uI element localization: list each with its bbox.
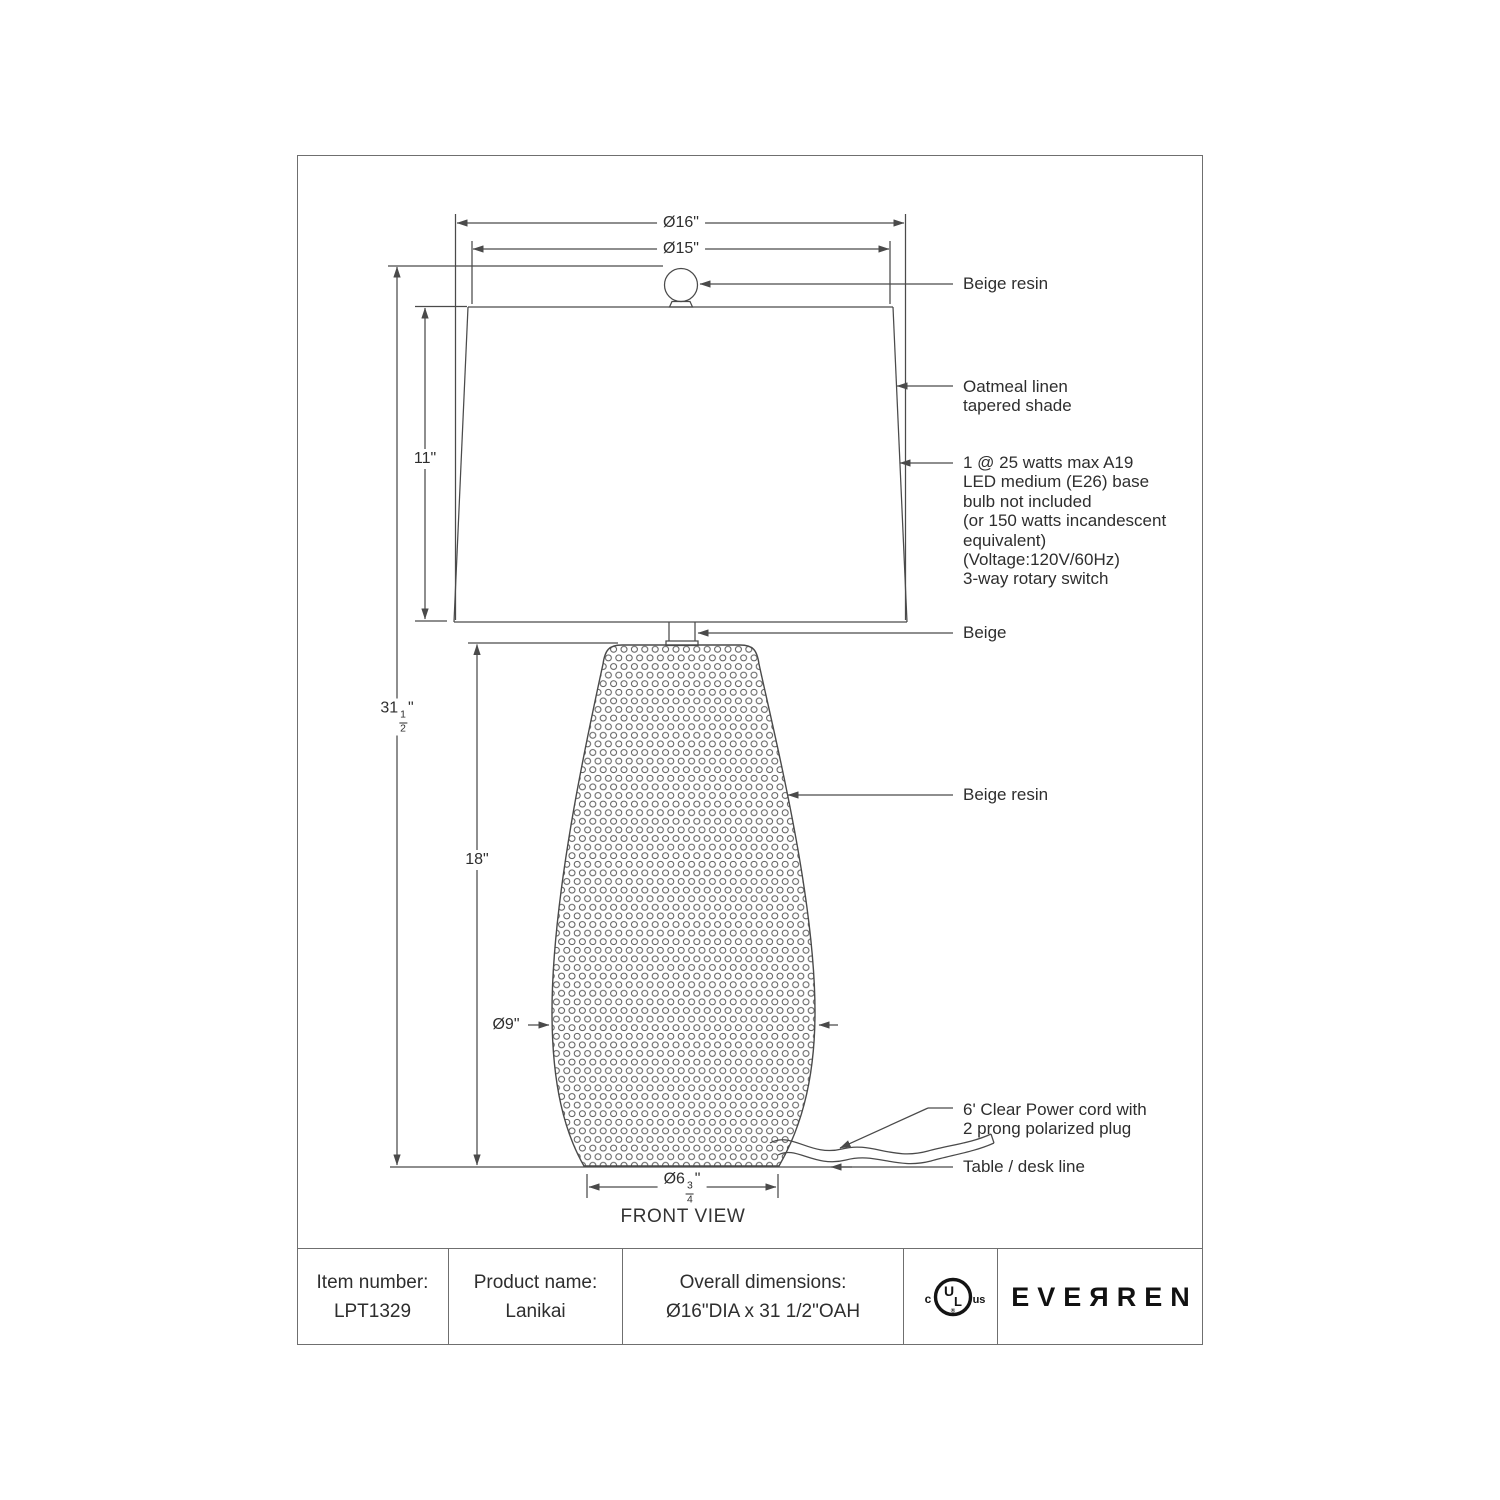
callout-shade-line2: tapered shade (963, 396, 1072, 415)
title-block: Item number: LPT1329 Product name: Lanik… (297, 1248, 1203, 1345)
fraction-numerator: 3 (686, 1182, 694, 1194)
fraction-denominator: 4 (687, 1194, 693, 1205)
lamp-shade-outline (454, 307, 907, 622)
callout-bulb-line4: (or 150 watts incandescent (963, 511, 1166, 530)
ul-letter-u: U (943, 1283, 953, 1299)
dim-base-diameter-unit: " (695, 1171, 701, 1188)
callout-cord-line2: 2 prong polarized plug (963, 1119, 1147, 1138)
ul-letter-l: L (954, 1294, 962, 1309)
registered-mark: ® (950, 1307, 955, 1314)
dim-base-diameter-fraction: 34 (686, 1182, 694, 1206)
view-title: FRONT VIEW (621, 1206, 746, 1228)
power-cord (770, 1134, 994, 1164)
callout-bulb-line7: 3-way rotary switch (963, 569, 1166, 588)
spec-sheet: Ø16" Ø15" 11" 3112" 18" Ø9" Ø634" FRONT … (0, 0, 1500, 1500)
dim-overall-height-fraction: 12 (399, 711, 407, 735)
ul-canada-c: c (924, 1292, 931, 1306)
ul-us: us (972, 1294, 985, 1306)
product-name-label: Product name: (474, 1272, 598, 1293)
product-name-cell: Product name: Lanikai (448, 1249, 622, 1345)
callout-bulb-line2: LED medium (E26) base (963, 472, 1166, 491)
callout-bulb-line3: bulb not included (963, 492, 1166, 511)
dim-base-diameter-whole: Ø6 (664, 1171, 685, 1188)
item-number-label: Item number: (317, 1272, 429, 1293)
dim-base-diameter: Ø634" (658, 1170, 707, 1207)
callout-neck: Beige (963, 623, 1006, 642)
callout-table-line: Table / desk line (963, 1157, 1085, 1176)
dim-shade-bottom-diameter: Ø16" (657, 213, 705, 233)
callout-finial: Beige resin (963, 274, 1048, 293)
dim-shade-height: 11" (408, 449, 442, 469)
brand-cell: EVEЯREN (997, 1249, 1203, 1345)
callout-bulb-line6: (Voltage:120V/60Hz) (963, 550, 1166, 569)
item-number-value: LPT1329 (334, 1301, 411, 1322)
dim-body-diameter: Ø9" (486, 1015, 525, 1035)
lamp-body (552, 645, 815, 1166)
brand-logo: EVEЯREN (1003, 1287, 1197, 1308)
overall-dimensions-label: Overall dimensions: (680, 1272, 847, 1293)
callout-cord-line1: 6' Clear Power cord with (963, 1100, 1147, 1119)
callout-shade-line1: Oatmeal linen (963, 377, 1072, 396)
lamp-neck (666, 622, 698, 646)
overall-dimensions-cell: Overall dimensions: Ø16"DIA x 31 1/2"OAH (622, 1249, 903, 1345)
item-number-cell: Item number: LPT1329 (297, 1249, 448, 1345)
callout-bulb-line1: 1 @ 25 watts max A19 (963, 453, 1166, 472)
fraction-numerator: 1 (399, 711, 407, 723)
finial (665, 269, 698, 308)
product-name-value: Lanikai (505, 1301, 565, 1322)
fraction-denominator: 2 (400, 723, 406, 734)
dim-body-height: 18" (459, 850, 494, 870)
callout-cord: 6' Clear Power cord with 2 prong polariz… (963, 1100, 1147, 1139)
callout-bulb-spec: 1 @ 25 watts max A19 LED medium (E26) ba… (963, 453, 1166, 589)
callout-bulb-line5: equivalent) (963, 531, 1166, 550)
ul-certification-cell: U L ® c us (903, 1249, 997, 1345)
dim-overall-height-whole: 31 (380, 700, 398, 717)
dim-shade-top-diameter: Ø15" (657, 239, 705, 259)
dim-overall-height-unit: " (408, 700, 414, 717)
ul-listed-icon: U L ® c us (904, 1250, 998, 1345)
overall-dimensions-value: Ø16"DIA x 31 1/2"OAH (666, 1301, 860, 1322)
dim-overall-height: 3112" (374, 699, 419, 736)
callout-shade: Oatmeal linen tapered shade (963, 377, 1072, 416)
callout-body: Beige resin (963, 785, 1048, 804)
